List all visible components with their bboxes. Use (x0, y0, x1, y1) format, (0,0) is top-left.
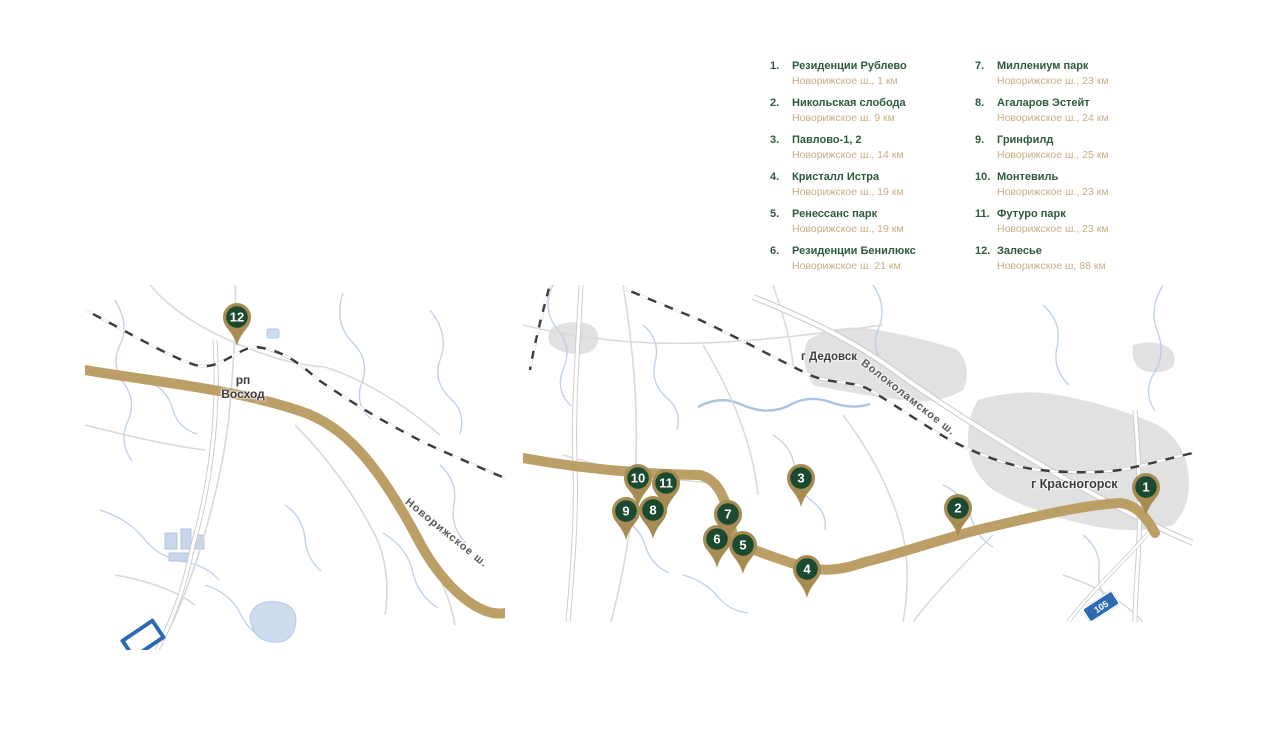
legend-item-name: Резиденции Рублево (792, 60, 907, 73)
map-marker-number: 5 (739, 538, 746, 553)
legend-item-3: 3.Павлово-1, 2Новорижское ш., 14 км (770, 134, 975, 162)
map-marker-8[interactable]: 8 (638, 495, 668, 539)
legend-item-12: 12.ЗалесьеНоворижское ш, 88 км (975, 245, 1180, 273)
legend-item-6: 6.Резиденции БенилюксНоворижское ш. 21 к… (770, 245, 975, 273)
legend-item-name: Миллениум парк (997, 60, 1109, 73)
legend-item-2: 2.Никольская слободаНоворижское ш. 9 км (770, 97, 975, 125)
legend-item-name: Гринфилд (997, 134, 1109, 147)
map-marker-number: 1 (1142, 480, 1149, 495)
legend-item-name: Монтевиль (997, 171, 1109, 184)
legend-item-9: 9.ГринфилдНоворижское ш., 25 км (975, 134, 1180, 162)
legend-item-8: 8.Агаларов ЭстейтНоворижское ш., 24 км (975, 97, 1180, 125)
map-marker-number: 6 (713, 532, 720, 547)
legend-item-distance: Новорижское ш, 88 км (997, 260, 1106, 273)
legend-item-name: Футуро парк (997, 208, 1109, 221)
legend-item-distance: Новорижское ш., 1 км (792, 75, 907, 88)
legend-item-number: 2. (770, 97, 792, 125)
legend-item-name: Агаларов Эстейт (997, 97, 1109, 110)
map-marker-1[interactable]: 1 (1131, 472, 1161, 516)
legend-item-distance: Новорижское ш., 25 км (997, 149, 1109, 162)
legend-column-1: 1.Резиденции РублевоНоворижское ш., 1 км… (770, 60, 975, 282)
legend-item-11: 11.Футуро паркНоворижское ш., 23 км (975, 208, 1180, 236)
map-right-artwork (523, 285, 1193, 622)
legend-item-4: 4.Кристалл ИстраНоворижское ш., 19 км (770, 171, 975, 199)
legend-item-name: Кристалл Истра (792, 171, 904, 184)
legend-item-distance: Новорижское ш., 23 км (997, 223, 1109, 236)
map-marker-number: 8 (649, 503, 656, 518)
legend-item-10: 10.МонтевильНоворижское ш., 23 км (975, 171, 1180, 199)
legend-item-5: 5.Ренессанс паркНоворижское ш., 19 км (770, 208, 975, 236)
map-marker-2[interactable]: 2 (943, 493, 973, 537)
map-marker-number: 7 (724, 507, 731, 522)
map-marker-number: 11 (659, 476, 673, 491)
legend-item-number: 7. (975, 60, 997, 88)
legend-item-number: 10. (975, 171, 997, 199)
legend-item-number: 1. (770, 60, 792, 88)
legend-item-number: 11. (975, 208, 997, 236)
map-marker-5[interactable]: 5 (728, 530, 758, 574)
town-label-voskhod-prefix: рп (213, 373, 273, 387)
town-label-voskhod: рп Восход (213, 373, 273, 401)
map-marker-number: 9 (622, 504, 629, 519)
legend-item-7: 7.Миллениум паркНоворижское ш., 23 км (975, 60, 1180, 88)
map-marker-9[interactable]: 9 (611, 496, 641, 540)
town-label-voskhod-name: Восход (213, 387, 273, 401)
map-marker-number: 4 (803, 562, 810, 577)
legend-item-name: Павлово-1, 2 (792, 134, 904, 147)
map-left-artwork (85, 285, 505, 650)
legend-column-2: 7.Миллениум паркНоворижское ш., 23 км8.А… (975, 60, 1180, 282)
map-marker-number: 2 (954, 501, 961, 516)
legend-item-distance: Новорижское ш., 24 км (997, 112, 1109, 125)
legend-item-number: 6. (770, 245, 792, 273)
legend-item-number: 9. (975, 134, 997, 162)
legend-item-name: Резиденции Бенилюкс (792, 245, 916, 258)
legend-item-name: Никольская слобода (792, 97, 906, 110)
legend-item-number: 8. (975, 97, 997, 125)
legend-item-name: Залесье (997, 245, 1106, 258)
town-label-dedovsk: г Дедовск (801, 351, 857, 363)
page: 1.Резиденции РублевоНоворижское ш., 1 км… (0, 0, 1280, 733)
legend-item-name: Ренессанс парк (792, 208, 904, 221)
legend-item-distance: Новорижское ш., 19 км (792, 186, 904, 199)
legend-item-distance: Новорижское ш. 21 км (792, 260, 916, 273)
legend-item-distance: Новорижское ш., 14 км (792, 149, 904, 162)
map-marker-4[interactable]: 4 (792, 554, 822, 598)
map-marker-number: 3 (797, 471, 804, 486)
map-marker-number: 10 (631, 471, 645, 486)
legend-item-distance: Новорижское ш., 23 км (997, 186, 1109, 199)
map-marker-number: 12 (230, 310, 244, 325)
legend-item-distance: Новорижское ш., 19 км (792, 223, 904, 236)
legend-item-number: 4. (770, 171, 792, 199)
legend-item-number: 5. (770, 208, 792, 236)
legend-item-number: 12. (975, 245, 997, 273)
map-panel-krasnogorsk[interactable]: г Дедовск г Красногорск Волоколамское ш.… (523, 285, 1193, 622)
map-marker-12[interactable]: 12 (222, 302, 252, 346)
legend-item-1: 1.Резиденции РублевоНоворижское ш., 1 км (770, 60, 975, 88)
town-label-krasnogorsk: г Красногорск (1031, 477, 1118, 491)
legend-item-distance: Новорижское ш., 23 км (997, 75, 1109, 88)
map-marker-3[interactable]: 3 (786, 463, 816, 507)
legend-item-distance: Новорижское ш. 9 км (792, 112, 906, 125)
map-panel-voskhod[interactable]: рп Восход Новорижское ш. 12 (85, 285, 505, 650)
legend-item-number: 3. (770, 134, 792, 162)
